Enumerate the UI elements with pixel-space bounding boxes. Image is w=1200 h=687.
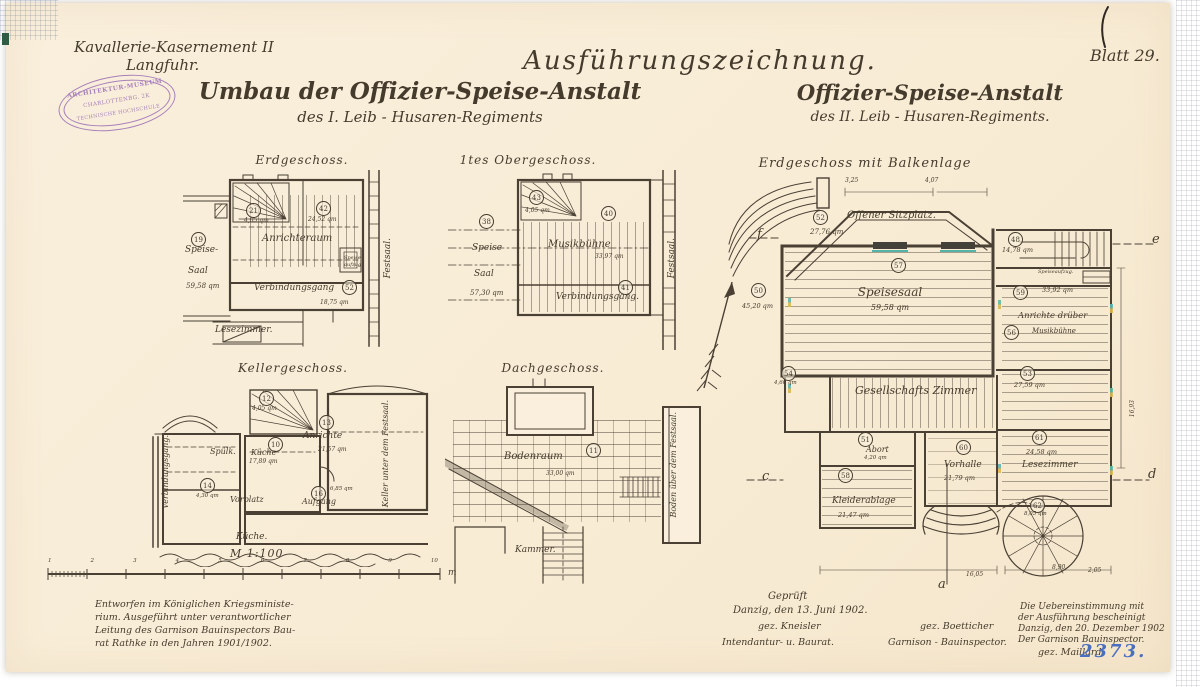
beam-fleck xyxy=(1110,304,1113,313)
plan4-drawing xyxy=(445,375,705,585)
checked-role-2: Garnison - Bauinspector. xyxy=(888,638,1007,648)
project-line2: Langfuhr. xyxy=(126,58,199,74)
plan5-kleiderablage-label: Kleiderablage xyxy=(832,497,896,506)
plan1-anrichteraum-ref: 42 xyxy=(316,201,331,216)
checked-signature-2: gez. Boetticher xyxy=(920,622,993,632)
scale-tick: 7 xyxy=(303,558,307,564)
scale-tick: 6 xyxy=(261,558,265,564)
plan5-vorhalle-label: Vorhalle xyxy=(944,461,982,470)
section-letter-d: d xyxy=(1148,468,1156,482)
plan5-speisesaal-area: 59,58 qm xyxy=(871,304,909,312)
beam-fleck xyxy=(998,464,1001,473)
plan2-saal-label1: Speise xyxy=(472,244,502,253)
plan3-vorplatz-ref: 14 xyxy=(200,478,215,493)
plan4-boden-label: Bodenraum xyxy=(504,452,563,463)
dim-right-vertical: 16,93 xyxy=(1130,400,1136,417)
plan5-stair-ref: 48 xyxy=(1008,232,1023,247)
certified-note-line2: der Ausführung bescheinigt xyxy=(1018,614,1145,623)
plan5-musik-label: Musikbühne xyxy=(1032,328,1076,335)
beam-fleck xyxy=(1110,466,1113,475)
beam-fleck xyxy=(998,300,1001,309)
plan1-aufzug-label2: aufzug xyxy=(344,263,361,268)
checked-note-title: Geprüft xyxy=(768,592,807,603)
plan5-anrichte-ref: 59 xyxy=(1013,285,1028,300)
plan2-musik-ref: 40 xyxy=(601,206,616,221)
plan5-lese-area: 24,58 qm xyxy=(1026,449,1057,456)
plan5-abort-label: Abort xyxy=(866,446,889,454)
plan3-anrichte-ref: 13 xyxy=(319,415,334,430)
plan5-speisesaal-ref: 57 xyxy=(891,258,906,273)
beam-fleck xyxy=(788,298,791,307)
plan3-aufgang-label: Aufgang xyxy=(302,498,336,506)
plan5-vorhalle-ref: 60 xyxy=(956,440,971,455)
scale-tick: 2 xyxy=(91,558,95,564)
section-letter-f: f xyxy=(757,228,762,242)
scale-tick: 8 xyxy=(346,558,350,564)
plan1-saal-area: 59,58 qm xyxy=(186,283,219,290)
designed-note-line1: Entworfen im Königlichen Kriegsministe- xyxy=(95,600,294,610)
plan2-saal-ref: 38 xyxy=(479,214,494,229)
plan3-aufgang-area: 6,85 qm xyxy=(330,487,353,493)
plan4-boden-area: 33,00 qm xyxy=(546,471,575,477)
plan5-stair-area: 14,78 qm xyxy=(1002,247,1033,254)
plan3-kueche-area: 17,89 qm xyxy=(249,459,278,465)
plan5-links-ref: 50 xyxy=(751,283,766,298)
plan1-lesezimmer-label: Lesezimmer. xyxy=(215,326,272,335)
plan5-kleider-ref: 58 xyxy=(838,468,853,483)
scanned-drawing-page: Kavallerie-Kasernement II Langfuhr. ARCH… xyxy=(0,0,1200,687)
sheet-number: Blatt 29. xyxy=(1090,48,1160,65)
section-letter-a: a xyxy=(938,578,946,592)
plan5-gesellschaft-label: Gesellschafts Zimmer xyxy=(855,385,976,397)
plan3-anrichte-area: 21,57 qm xyxy=(318,447,347,453)
plan4-festsaal-boden-label: Boden über dem Festsaal. xyxy=(670,412,678,518)
scale-tick: 3 xyxy=(133,558,137,564)
plan3-kueche-label: Küche xyxy=(251,449,276,457)
plan5-kleiderablage-area: 21,47 qm xyxy=(838,512,869,519)
plan5-ges-ref: 53 xyxy=(1020,366,1035,381)
plan3-anrichte-label: Anrichte xyxy=(303,432,342,441)
dim-bottom-1: 16,05 xyxy=(966,572,983,578)
plan3-vorplatz-area: 4,30 qm xyxy=(196,494,219,500)
plan5-aufzug-label: Speiseaufzug. xyxy=(1038,270,1073,275)
certified-note-line3: Danzig, den 20. Dezember 1902 xyxy=(1018,625,1165,634)
plan2-drawing xyxy=(448,170,703,350)
plan5-speisesaal-label: Speisesaal xyxy=(858,286,922,299)
scale-tick-numbers: 1 2 3 4 5 6 7 8 9 10 xyxy=(48,558,438,564)
plan5-musik-ref: 56 xyxy=(1004,325,1019,340)
plan2-festsaal-label: Festsaal. xyxy=(668,238,677,278)
plan1-saal-label1: Speise- xyxy=(185,246,218,255)
section-letter-e: e xyxy=(1152,233,1160,247)
plan1-gang-area: 18,75 qm xyxy=(320,300,349,306)
scale-ruler xyxy=(45,565,455,583)
plan5-vorhalle-area: 21,79 qm xyxy=(944,475,975,482)
beam-fleck xyxy=(1110,388,1113,397)
section-letter-c: c xyxy=(762,470,769,484)
designed-note-line4: rat Rathke in den Jahren 1901/1902. xyxy=(95,639,272,649)
plan5-sitzplatz-ref: 52 xyxy=(813,210,828,225)
title-left-line1: Umbau der Offizier-Speise-Anstalt xyxy=(199,80,641,104)
plan2-saal-area: 57,30 qm xyxy=(470,290,503,297)
plan4-kammer-label: Kammer. xyxy=(515,546,556,555)
designed-note-line3: Leitung des Garnison Bauinspectors Bau- xyxy=(95,626,295,636)
archive-number: 2373. xyxy=(1080,643,1146,662)
plan3-verbindungsgang-label: Verbindungsgang. xyxy=(162,435,170,509)
plan5-sitzplatz-label: Offener Sitzplatz. xyxy=(847,211,936,222)
plan5-sitzplatz-area: 27,76 qm xyxy=(810,229,843,236)
plan2-musik-label: Musikbühne xyxy=(548,240,611,251)
plan5-ges-area: 27,59 qm xyxy=(1014,382,1045,389)
plan2-gang-label: Verbindungsgang. xyxy=(556,293,639,302)
plan1-gang-label: Verbindungsgang xyxy=(254,284,334,293)
plan3-keller-label: Keller unter dem Festsaal. xyxy=(382,400,390,507)
plan1-anrichteraum-label: Anrichteraum xyxy=(262,234,332,245)
plan1-saal-label2: Saal xyxy=(188,267,208,276)
scale-tick: 5 xyxy=(218,558,222,564)
plan2-stair-area: 4,05 qm xyxy=(525,208,550,214)
plan4-title: Dachgeschoss. xyxy=(502,362,605,375)
north-arrow xyxy=(688,270,748,400)
project-line1: Kavallerie-Kasernement II xyxy=(74,40,274,56)
plan1-anrichteraum-area: 24,52 qm xyxy=(308,217,337,223)
certified-note-line1: Die Uebereinstimmung mit xyxy=(1020,603,1144,612)
plan3-stair-ref: 12 xyxy=(259,391,274,406)
scale-tick: 10 xyxy=(431,558,438,564)
checked-signature-1: gez. Kneisler xyxy=(758,622,821,632)
plan3-spuelkueche-label: Spülk. xyxy=(210,448,236,456)
checked-note-date: Danzig, den 13. Juni 1902. xyxy=(733,606,868,617)
plan2-musik-area: 33,97 qm xyxy=(595,254,624,260)
plan4-boden-ref: 11 xyxy=(586,443,601,458)
title-left-line2: des I. Leib - Husaren-Regiments xyxy=(297,110,542,126)
plan5-anrichte-area: 33,92 qm xyxy=(1042,287,1073,294)
plan3-drawing xyxy=(145,372,440,567)
plan5-klein-area: 4,60 qm xyxy=(774,381,797,387)
drawing-heading: Ausführungszeichnung. xyxy=(523,48,877,75)
scale-tick: 4 xyxy=(176,558,180,564)
title-right-line1: Offizier-Speise-Anstalt xyxy=(797,82,1063,104)
scale-unit: m xyxy=(448,569,457,578)
plan2-stair-ref: 43 xyxy=(529,190,544,205)
title-right-line2: des II. Leib - Husaren-Regiments. xyxy=(810,110,1049,125)
dim-bottom-3: 2,05 xyxy=(1088,568,1101,574)
plan3-stair-area: 4,05 qm xyxy=(252,406,277,412)
plan3-vorplatz-label: Vorplatz xyxy=(230,496,264,504)
dim-top-1: 3,25 xyxy=(845,178,858,184)
plan3-kueche-unten-label: Küche. xyxy=(236,533,267,542)
plan1-aufzug-label1: Speise- xyxy=(344,256,362,261)
pen-flourish xyxy=(1096,5,1118,49)
plan5-links-area: 45,20 qm xyxy=(742,303,773,310)
plan5-lesezimmer-label: Lesezimmer xyxy=(1022,461,1078,470)
plan1-stair-ref: 21 xyxy=(246,203,261,218)
plan1-festsaal-label: Festsaal. xyxy=(384,238,393,278)
plan1-stair-area: 4,05 qm xyxy=(244,218,269,224)
plan2-saal-label2: Saal xyxy=(474,270,494,279)
plan5-wendel-area: 8,05 qm xyxy=(1024,512,1047,518)
scale-tick: 9 xyxy=(388,558,392,564)
dim-bottom-2: 8,90 xyxy=(1052,565,1065,571)
graph-paper-edge xyxy=(1176,0,1200,687)
plan5-lese-ref: 61 xyxy=(1032,430,1047,445)
dim-top-2: 4,07 xyxy=(925,178,938,184)
plan5-abort-area: 4,20 qm xyxy=(864,456,887,462)
checked-role-1: Intendantur- u. Baurat. xyxy=(722,638,834,648)
plan1-title: Erdgeschoss. xyxy=(256,154,349,167)
scale-tick: 1 xyxy=(48,558,52,564)
designed-note-line2: rium. Ausgeführt unter verantwortlicher xyxy=(95,613,291,623)
edge-mark xyxy=(2,33,9,45)
plan5-klein-ref: 54 xyxy=(781,366,796,381)
plan5-anrichte-label: Anrichte drüber xyxy=(1018,312,1087,321)
plan2-title: 1tes Obergeschoss. xyxy=(460,154,597,167)
plan1-gang-ref: 52 xyxy=(342,280,357,295)
